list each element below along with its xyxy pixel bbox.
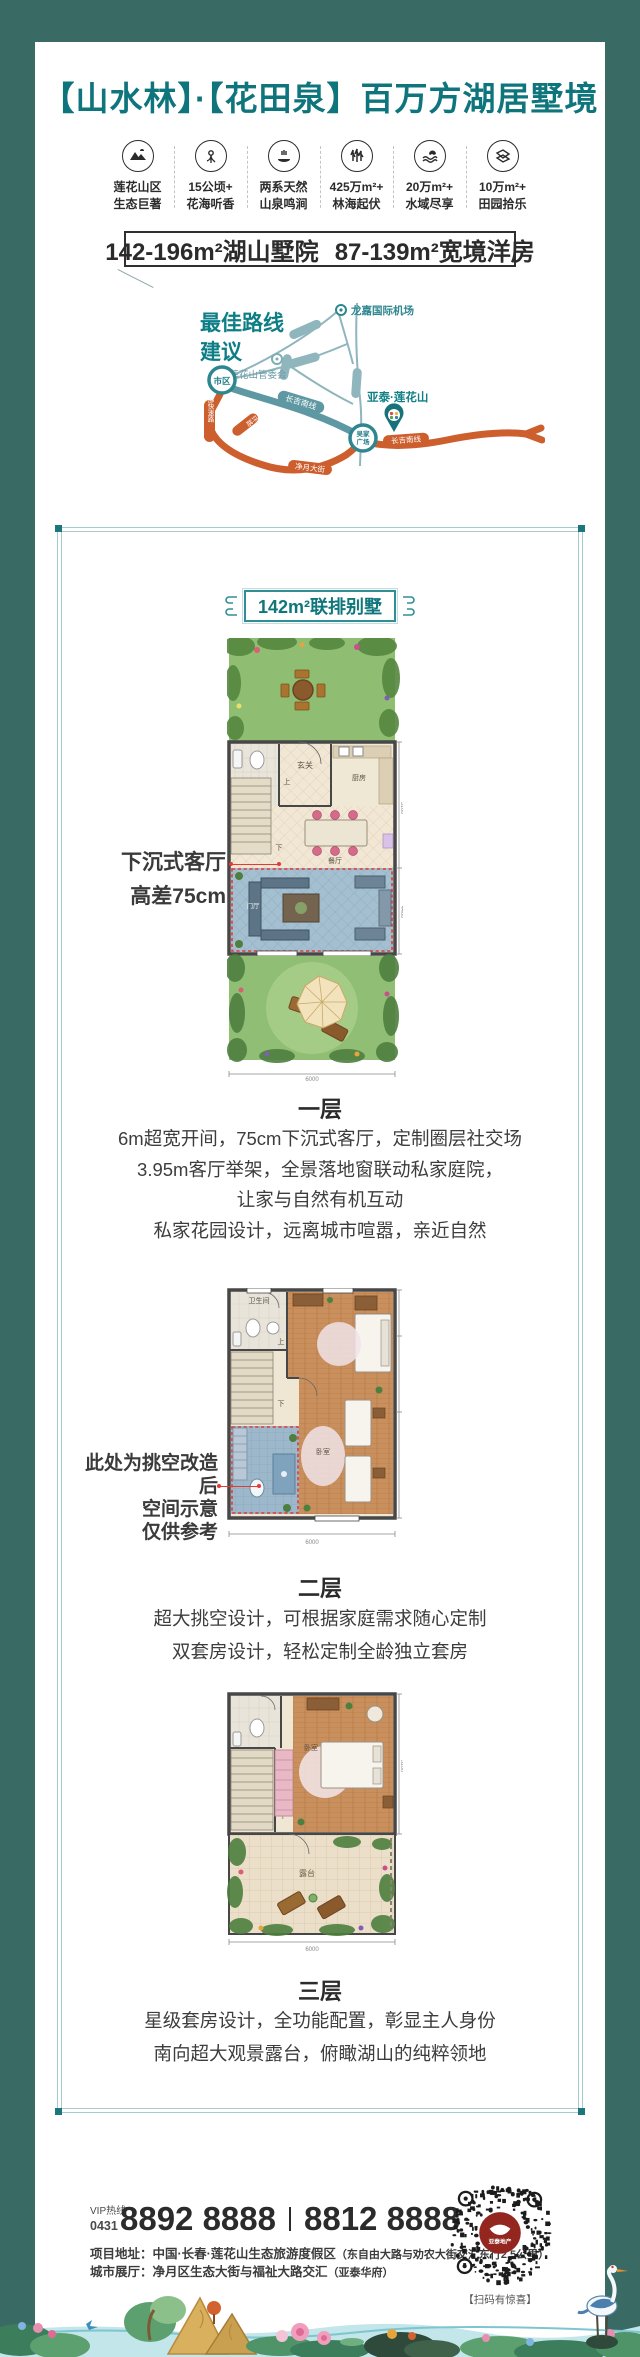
room-label-terrace: 露台 xyxy=(299,1868,315,1878)
mountain-icon xyxy=(122,140,154,172)
feature-caption: 10万m²+田园拾乐 xyxy=(478,179,526,213)
page-title: 【山水林】·【花田泉】百万方湖居墅境 xyxy=(35,72,605,120)
area-banner: 142-196m²湖山墅院 87-139m²宽境洋房 xyxy=(124,231,516,267)
floor2-callout: 此处为挑空改造后 空间示意 仅供参考 xyxy=(68,1452,218,1544)
panel-corner xyxy=(578,2108,585,2115)
room-label-up: 上 xyxy=(284,777,291,786)
feature-caption: 15公顷+花海听香 xyxy=(186,179,234,213)
room-label-down: 下 xyxy=(276,844,283,852)
feature-item: 15公顷+花海听香 xyxy=(175,140,247,213)
phone-number-1: 8892 8888 xyxy=(120,2200,276,2238)
banner-villa: 142-196m²湖山墅院 xyxy=(105,232,318,267)
feature-item: 20万m²+水域尽享 xyxy=(394,140,466,213)
route-map: 长吉南线 东部快速路 二环路 净月大街 长吉南线 xyxy=(105,298,545,483)
project-pin xyxy=(385,403,404,432)
callout-leader-line xyxy=(219,1486,259,1487)
floor1-description: 6m超宽开间，75cm下沉式客厅，定制圈层社交场 3.95m客厅举架，全景落地窗… xyxy=(57,1124,583,1246)
feature-item: 10万m²+田园拾乐 xyxy=(467,140,539,213)
water-icon xyxy=(414,140,446,172)
room-label-kitchen: 厨房 xyxy=(352,773,366,782)
floorplan-level2: 卫生间 上 下 卧室 xyxy=(227,1288,403,1550)
feature-caption: 两系天然山泉鸣涧 xyxy=(259,179,307,213)
plan-title-row: 142m²联排别墅 xyxy=(212,591,428,621)
flower-icon xyxy=(195,140,227,172)
floor1-heading: 一层 xyxy=(57,1092,583,1124)
feature-item: 两系天然山泉鸣涧 xyxy=(248,140,320,213)
feature-caption: 425万m²+林海起伏 xyxy=(330,179,384,213)
phone-numbers: 8892 8888 8812 8888 xyxy=(120,2200,460,2238)
floorplan-level1: 卫生间 厨房 玄关 上 下 餐厅 xyxy=(227,638,403,1082)
panel-corner xyxy=(578,525,585,532)
dim-label: 6000 xyxy=(305,1077,319,1082)
feature-row: 莲花山区生态巨著 15公顷+花海听香 两系天然山泉鸣涧 xyxy=(80,140,560,213)
phone-separator xyxy=(289,2207,291,2231)
room-label-bath: 卫生间 xyxy=(249,1296,270,1305)
scroll-ornament-icon xyxy=(402,594,416,618)
room-label-foyer: 玄关 xyxy=(297,760,313,770)
dim-label: 5100 xyxy=(399,802,403,814)
room-label-bedroom: 卧室 xyxy=(316,1447,330,1456)
plaza-label: 吴家 xyxy=(357,429,371,438)
spring-icon xyxy=(268,140,300,172)
room-label-down: 下 xyxy=(278,1400,285,1408)
banner-flat: 87-139m²宽境洋房 xyxy=(335,232,535,267)
dim-label: 6000 xyxy=(305,1947,319,1952)
room-label-up: 上 xyxy=(278,1337,285,1346)
room-label-dining: 餐厅 xyxy=(328,856,342,865)
floor2-description: 超大挑空设计，可根据家庭需求随心定制 双套房设计，轻松定制全龄独立套房 xyxy=(57,1602,583,1668)
developer-logo-text: 亚泰地产 xyxy=(489,2237,512,2245)
landscape-illustration xyxy=(0,2262,640,2357)
downtown-label: 市区 xyxy=(213,376,231,386)
floorplan-level3: 下 卧室 露台 5100 6000 xyxy=(227,1692,403,1952)
poster: 【山水林】·【花田泉】百万方湖居墅境 莲花山区生态巨著 15公顷+花海听香 xyxy=(0,0,640,2357)
dim-label: 5100 xyxy=(399,1760,403,1772)
floor3-description: 星级套房设计，全功能配置，彰显主人身份 南向超大观景露台，俯瞰湖山的纯粹领地 xyxy=(57,2004,583,2070)
room-label-hall: 门厅 xyxy=(247,901,261,910)
dim-label: 4400 xyxy=(399,906,403,918)
feature-item: 莲花山区生态巨著 xyxy=(102,140,174,213)
feature-caption: 莲花山区生态巨著 xyxy=(113,179,161,213)
forest-icon xyxy=(341,140,373,172)
floor1-callout: 下沉式客厅高差75cm xyxy=(70,846,226,914)
floor3-heading: 三层 xyxy=(57,1974,583,2006)
phone-number-2: 8812 8888 xyxy=(304,2200,460,2238)
airport-label: 龙嘉国际机场 xyxy=(350,304,414,317)
room-label-bedroom: 卧室 xyxy=(304,1743,318,1752)
callout-leader-line xyxy=(231,864,279,865)
feature-caption: 20万m²+水域尽享 xyxy=(405,179,453,213)
project-label: 亚泰·莲花山 xyxy=(367,390,428,404)
scroll-ornament-icon xyxy=(224,594,238,618)
committee-label: 莲花山管委会 xyxy=(229,369,287,381)
feature-item: 425万m²+林海起伏 xyxy=(321,140,393,213)
dim-label: 6000 xyxy=(305,1540,319,1546)
panel-corner xyxy=(55,2108,62,2115)
field-icon xyxy=(487,140,519,172)
plan-title: 142m²联排别墅 xyxy=(244,590,396,622)
panel-corner xyxy=(55,525,62,532)
floor2-heading: 二层 xyxy=(57,1571,583,1603)
plaza-label: 广场 xyxy=(357,437,371,446)
